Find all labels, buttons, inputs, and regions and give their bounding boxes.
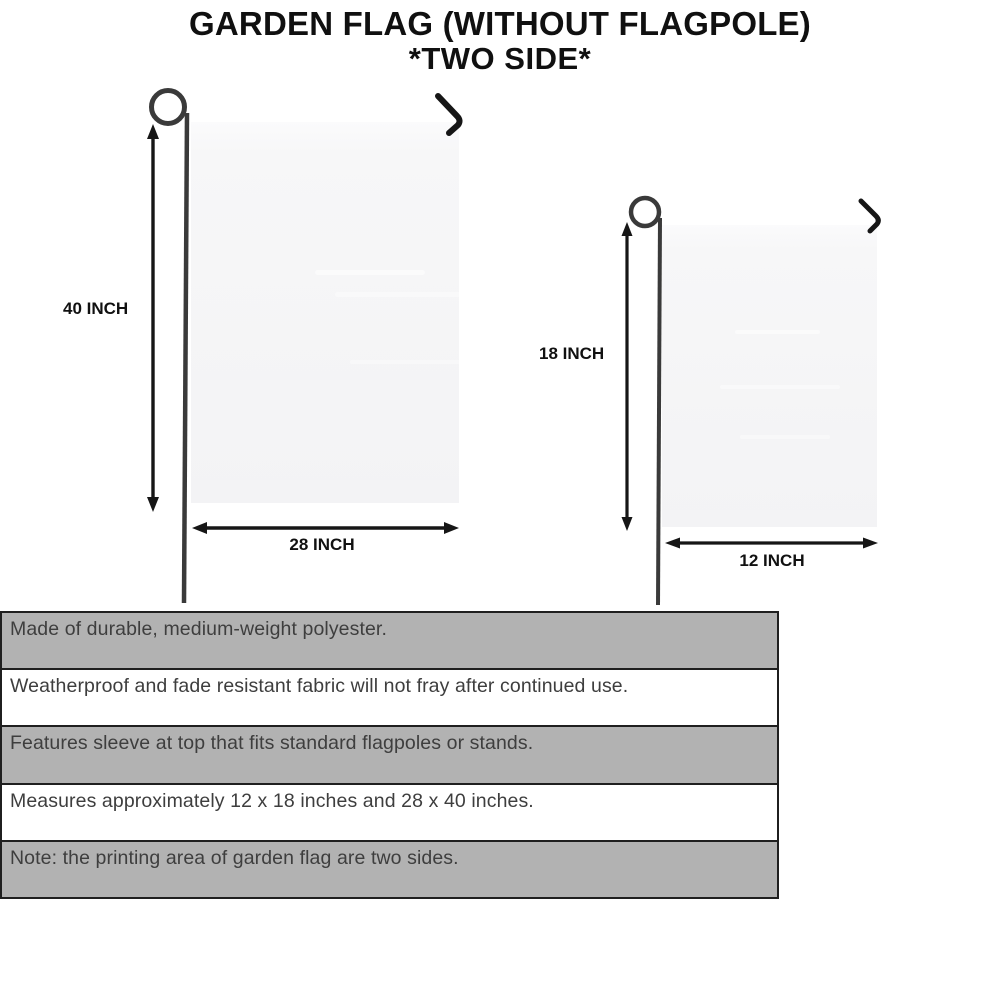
feature-list: Made of durable, medium-weight polyester…: [0, 611, 779, 899]
large-flag-wrinkle: [315, 270, 425, 275]
large-flag-height-arrow: [147, 124, 159, 512]
small-flag-pole: [658, 218, 660, 605]
large-flag-width-label: 28 INCH: [252, 535, 392, 555]
feature-row-material: Made of durable, medium-weight polyester…: [2, 613, 777, 670]
large-flag-wrinkle: [335, 292, 475, 297]
large-flag-pole: [184, 113, 187, 603]
large-flag-wrinkle: [350, 360, 500, 364]
large-flag-fabric: [191, 122, 459, 503]
small-flag-pole-loop: [631, 198, 659, 226]
large-flag-group: [147, 91, 500, 604]
small-flag-group: [622, 198, 879, 605]
feature-row-sleeve: Features sleeve at top that fits standar…: [2, 727, 777, 784]
small-flag-wrinkle: [720, 385, 840, 389]
small-flag-fabric: [662, 225, 877, 527]
small-flag-width-label: 12 INCH: [702, 551, 842, 571]
small-flag-height-label: 18 INCH: [539, 344, 604, 364]
feature-row-measurements: Measures approximately 12 x 18 inches an…: [2, 785, 777, 842]
feature-row-weatherproof: Weatherproof and fade resistant fabric w…: [2, 670, 777, 727]
small-flag-wrinkle: [740, 435, 830, 439]
large-flag-height-label: 40 INCH: [63, 299, 128, 319]
large-flag-width-arrow: [192, 522, 459, 534]
small-flag-wrinkle: [735, 330, 820, 334]
product-infographic: GARDEN FLAG (WITHOUT FLAGPOLE) *TWO SIDE…: [0, 0, 1000, 1000]
small-flag-height-arrow: [622, 222, 633, 531]
large-flag-pole-loop: [152, 91, 185, 124]
feature-row-note: Note: the printing area of garden flag a…: [2, 842, 777, 897]
small-flag-width-arrow: [665, 538, 878, 549]
